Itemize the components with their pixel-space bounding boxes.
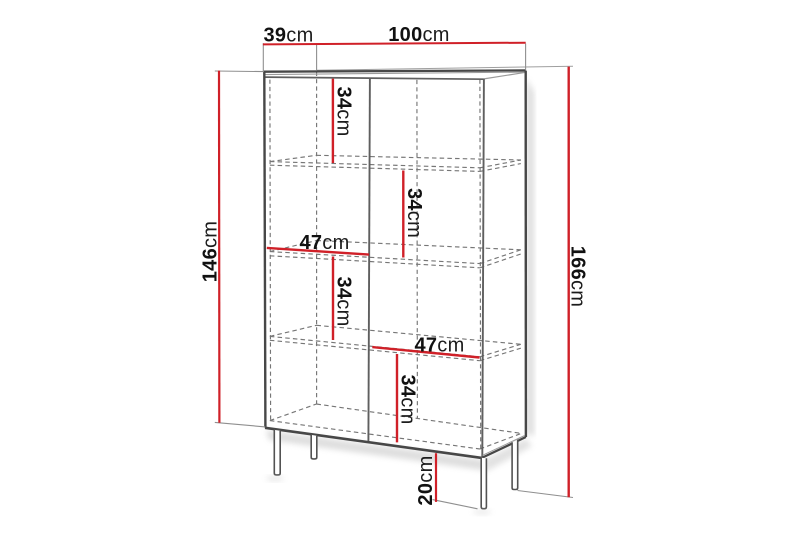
- svg-text:34cm: 34cm: [333, 86, 355, 136]
- svg-text:39cm: 39cm: [263, 24, 313, 46]
- svg-text:100cm: 100cm: [388, 24, 450, 46]
- svg-text:47cm: 47cm: [299, 232, 349, 254]
- svg-text:34cm: 34cm: [333, 276, 355, 326]
- svg-text:166cm: 166cm: [567, 246, 589, 308]
- svg-text:146cm: 146cm: [199, 221, 221, 283]
- svg-text:34cm: 34cm: [397, 374, 419, 424]
- svg-text:47cm: 47cm: [414, 335, 464, 357]
- svg-text:34cm: 34cm: [403, 188, 425, 238]
- svg-text:20cm: 20cm: [415, 455, 437, 505]
